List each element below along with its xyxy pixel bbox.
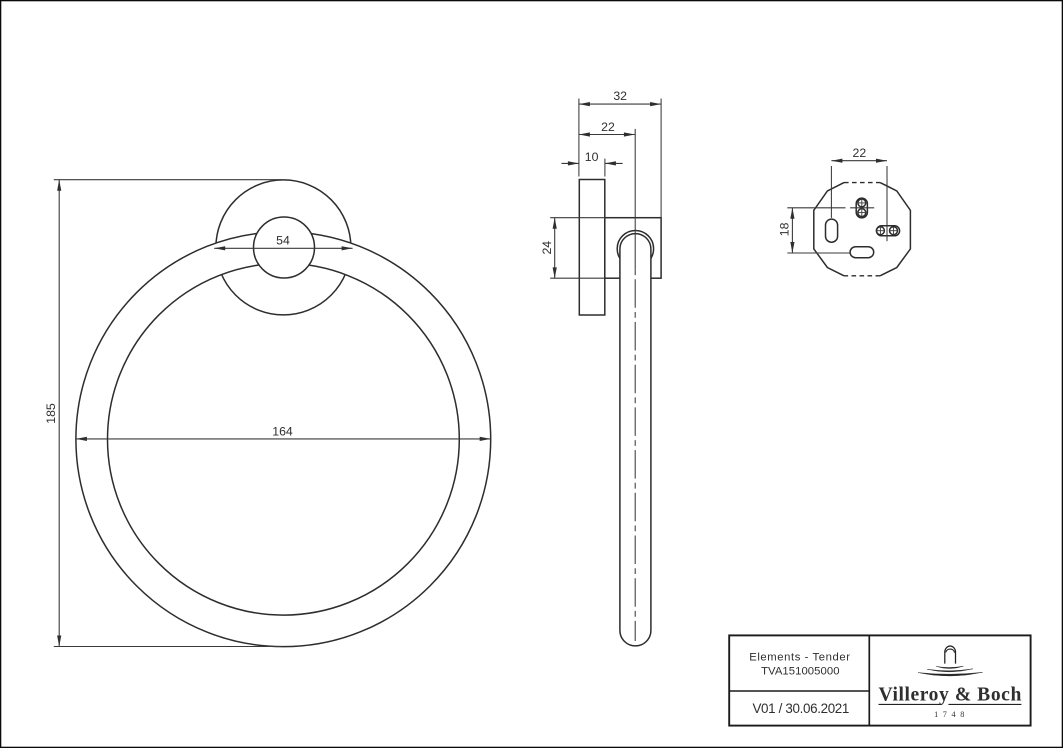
svg-text:1748: 1748 [934, 710, 969, 719]
svg-text:164: 164 [272, 425, 293, 439]
svg-text:32: 32 [613, 89, 627, 103]
svg-text:22: 22 [601, 120, 615, 134]
svg-text:TVA151005000: TVA151005000 [761, 666, 839, 678]
svg-text:V01 / 30.06.2021: V01 / 30.06.2021 [752, 701, 849, 716]
svg-text:54: 54 [276, 234, 290, 248]
svg-text:18: 18 [778, 222, 792, 236]
svg-text:10: 10 [585, 150, 599, 164]
svg-text:22: 22 [853, 146, 867, 160]
svg-text:185: 185 [44, 403, 58, 424]
svg-text:24: 24 [540, 241, 554, 255]
svg-text:Elements - Tender: Elements - Tender [749, 651, 850, 663]
svg-text:Villeroy & Boch: Villeroy & Boch [878, 685, 1021, 706]
